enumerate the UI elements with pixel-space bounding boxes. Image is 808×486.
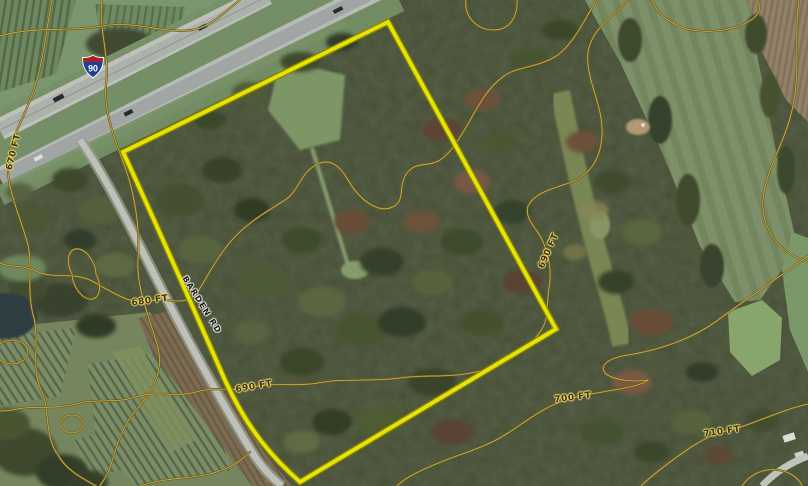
interstate-shield-icon: 90	[82, 54, 104, 79]
interstate-route-number: 90	[88, 63, 98, 73]
interstate-90-shield: 90	[82, 54, 104, 79]
aerial-imagery	[0, 0, 808, 486]
map-canvas[interactable]: 670 FT 680 FT 690 FT 690 FT 700 FT 710 F…	[0, 0, 808, 486]
photo-grain	[0, 0, 808, 486]
